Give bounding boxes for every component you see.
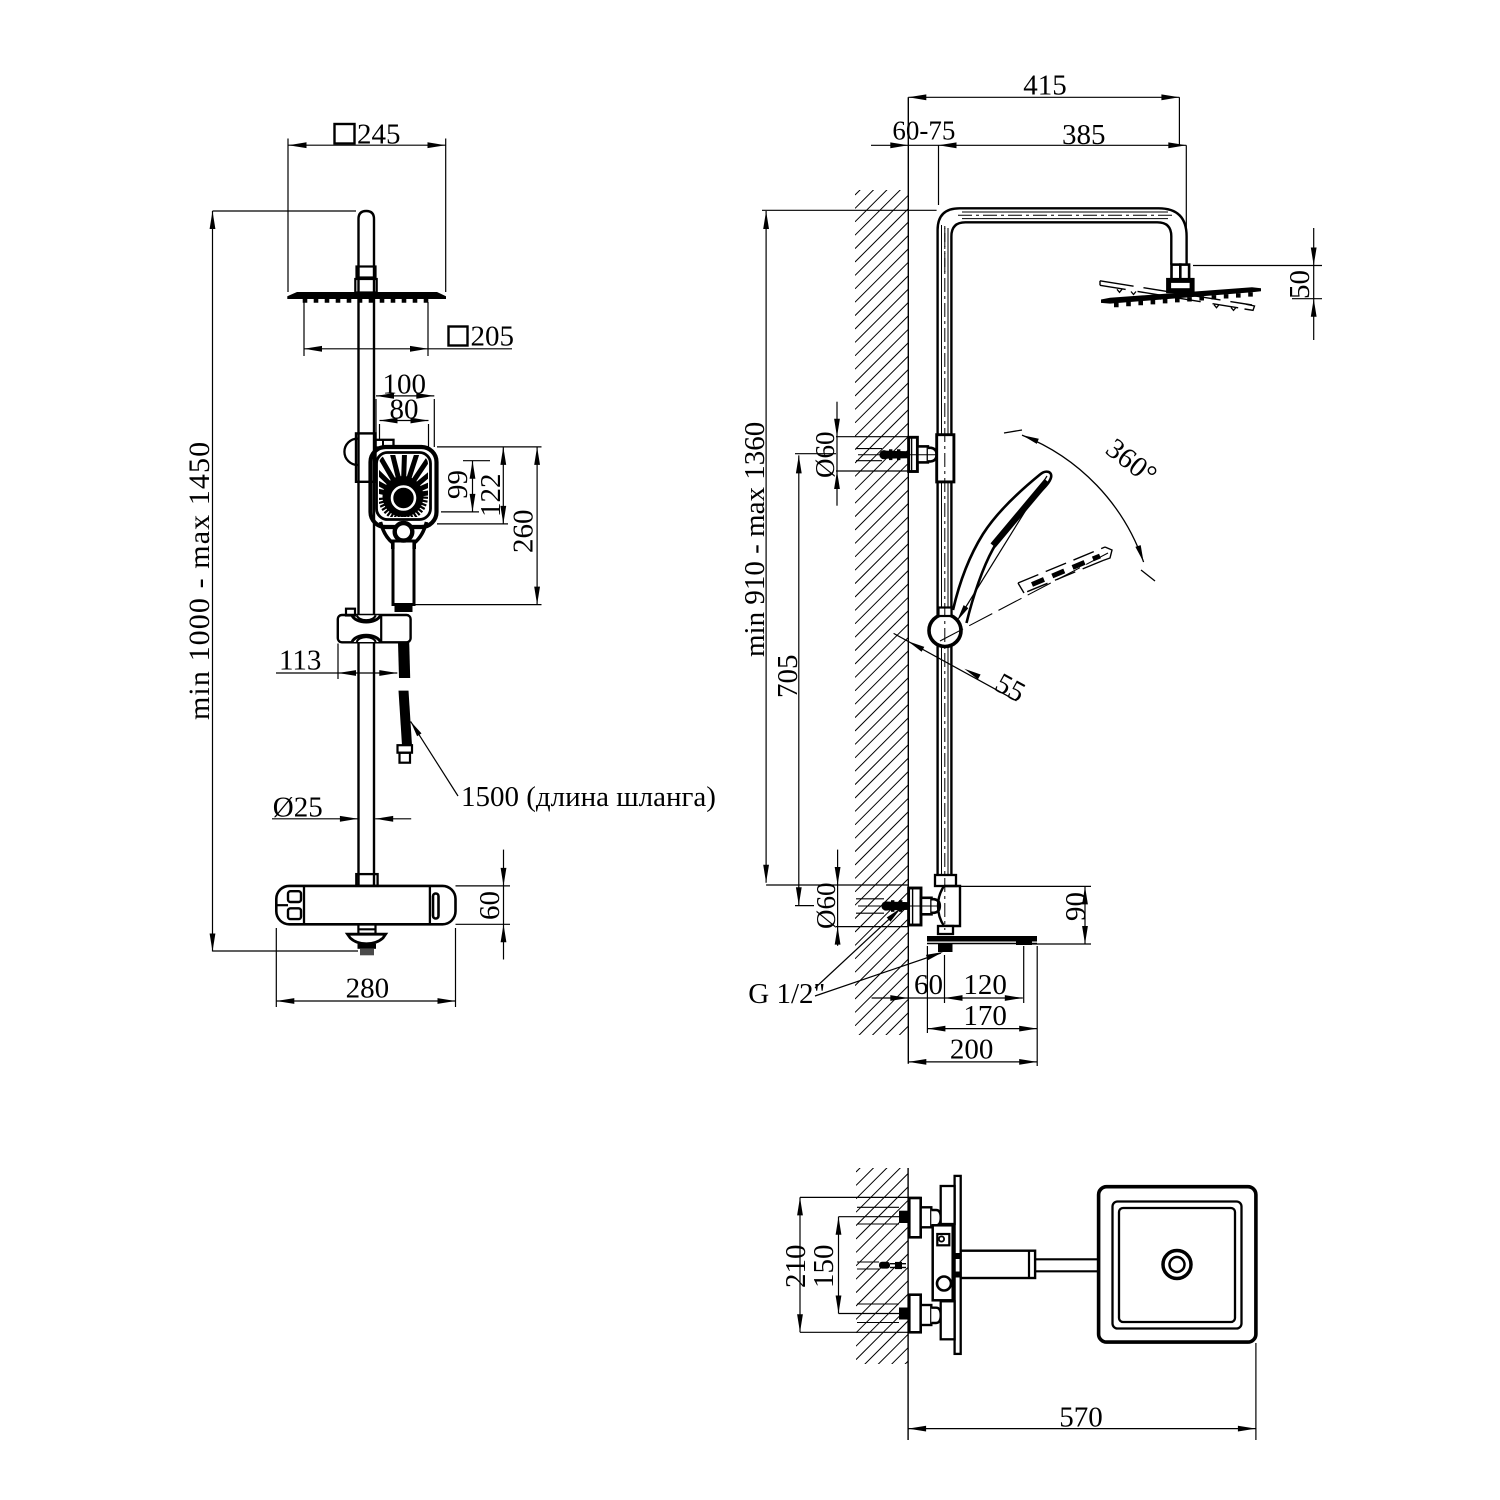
svg-text:Ø60: Ø60: [810, 432, 840, 479]
svg-text:Ø60: Ø60: [811, 883, 841, 930]
svg-text:150: 150: [808, 1245, 840, 1289]
svg-text:50: 50: [1284, 270, 1316, 299]
svg-text:385: 385: [1062, 119, 1106, 151]
svg-text:280: 280: [346, 973, 390, 1005]
svg-text:113: 113: [279, 644, 321, 676]
svg-text:min 910 - max 1360: min 910 - max 1360: [739, 422, 771, 657]
svg-text:570: 570: [1059, 1402, 1103, 1434]
svg-text:120: 120: [963, 969, 1007, 1001]
svg-text:60: 60: [474, 891, 506, 920]
svg-text:122: 122: [475, 474, 507, 518]
svg-text:200: 200: [950, 1034, 994, 1066]
svg-text:415: 415: [1023, 70, 1067, 102]
svg-text:260: 260: [508, 510, 540, 554]
svg-text:245: 245: [357, 119, 401, 151]
svg-text:170: 170: [963, 1000, 1007, 1032]
svg-text:min 1000 - max 1450: min 1000 - max 1450: [183, 441, 216, 720]
svg-text:G 1/2": G 1/2": [748, 978, 825, 1010]
svg-text:1500 (длина шланга): 1500 (длина шланга): [461, 781, 716, 813]
svg-text:60: 60: [914, 969, 943, 1001]
svg-text:205: 205: [471, 321, 515, 353]
svg-text:705: 705: [772, 655, 804, 699]
svg-text:60-75: 60-75: [892, 115, 955, 145]
svg-text:90: 90: [1060, 892, 1092, 921]
svg-text:Ø25: Ø25: [273, 791, 323, 823]
svg-text:80: 80: [390, 394, 419, 426]
svg-text:99: 99: [442, 470, 474, 499]
